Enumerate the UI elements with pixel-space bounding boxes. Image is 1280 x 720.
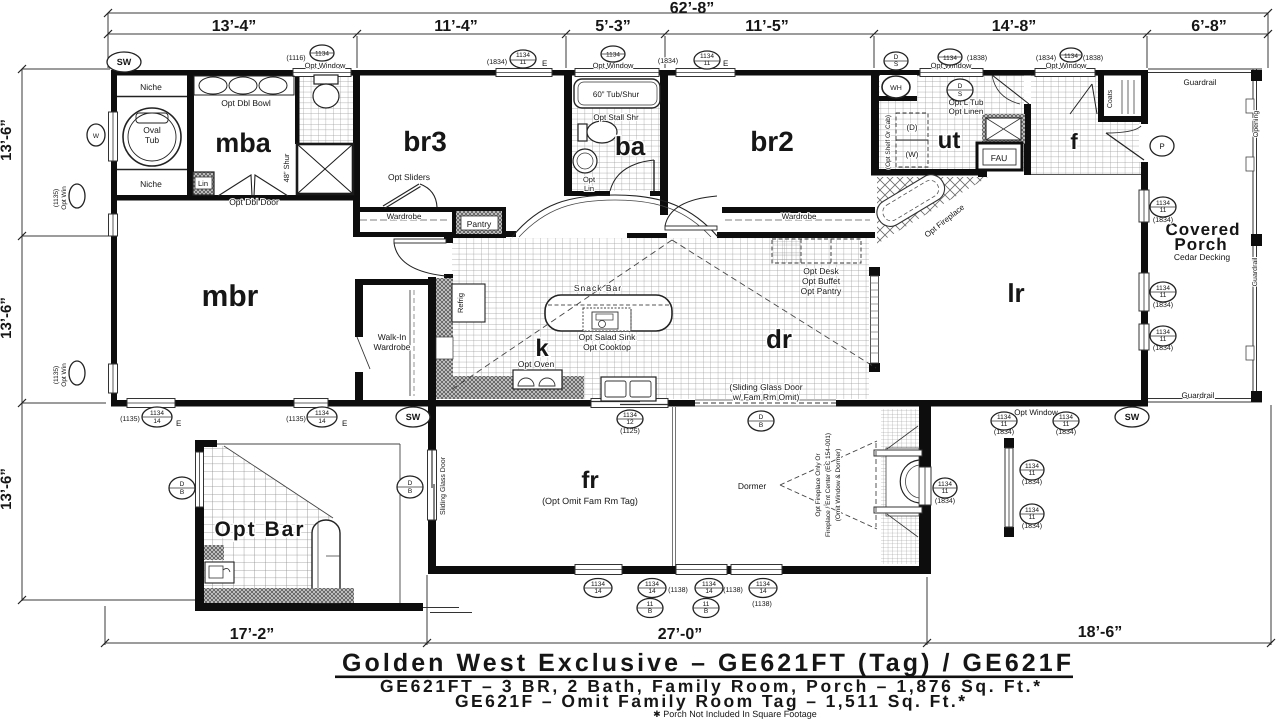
svg-text:(1834): (1834) (658, 57, 678, 65)
svg-text:1134: 1134 (1156, 200, 1170, 207)
svg-text:14: 14 (318, 418, 326, 425)
svg-text:6’-8”: 6’-8” (1191, 18, 1227, 35)
svg-text:Opt Sliders: Opt Sliders (388, 172, 430, 182)
svg-text:(1135): (1135) (120, 415, 140, 423)
svg-text:br2: br2 (750, 126, 794, 157)
svg-text:(1838): (1838) (967, 54, 987, 62)
svg-text:Walk-In: Walk-In (378, 332, 407, 342)
svg-text:1134: 1134 (756, 581, 770, 588)
svg-text:11: 11 (703, 601, 710, 608)
svg-text:B: B (648, 608, 652, 615)
svg-text:B: B (180, 489, 184, 496)
svg-text:1134: 1134 (150, 410, 164, 417)
svg-text:13’-4”: 13’-4” (212, 18, 256, 35)
svg-text:D: D (894, 54, 899, 61)
svg-text:Opening: Opening (1252, 111, 1260, 138)
svg-text:(1138): (1138) (752, 600, 772, 608)
svg-text:Lin: Lin (198, 179, 208, 188)
svg-text:(Omit Window & Dormer): (Omit Window & Dormer) (835, 449, 842, 522)
svg-text:13’-6”: 13’-6” (0, 468, 15, 510)
svg-text:11: 11 (1063, 421, 1070, 428)
svg-text:Opt: Opt (583, 175, 596, 184)
svg-text:1134: 1134 (1025, 463, 1039, 470)
svg-text:11: 11 (1001, 421, 1008, 428)
svg-text:11: 11 (942, 488, 949, 495)
svg-text:Guardrail: Guardrail (1182, 391, 1215, 400)
svg-text:br3: br3 (403, 126, 447, 157)
svg-text:1134: 1134 (623, 412, 637, 419)
svg-text:Opt Win: Opt Win (61, 186, 68, 210)
svg-text:Opt Salad Sink: Opt Salad Sink (579, 332, 636, 342)
svg-text:Fireplace / Ent Center (EC: Fireplace / Ent Center (EC 154-001) (825, 433, 832, 537)
svg-text:✱ Porch Not Included In S: ✱ Porch Not Included In Square Footage (653, 709, 817, 719)
svg-text:Opt Stall Shr: Opt Stall Shr (593, 113, 639, 122)
svg-text:f: f (1070, 129, 1078, 154)
svg-text:SW: SW (117, 57, 132, 67)
svg-text:1134: 1134 (1025, 507, 1039, 514)
svg-text:(1116): (1116) (286, 54, 305, 62)
svg-text:(1135): (1135) (286, 415, 306, 423)
svg-text:48” Shur: 48” Shur (282, 153, 291, 182)
svg-text:E: E (342, 419, 347, 428)
svg-text:1134: 1134 (315, 51, 329, 58)
svg-text:1134: 1134 (606, 52, 620, 59)
svg-text:Sliding Glass Door: Sliding Glass Door (439, 456, 447, 515)
svg-text:Opt Linen: Opt Linen (949, 107, 984, 116)
svg-text:14: 14 (705, 588, 713, 595)
svg-text:(1138): (1138) (668, 586, 688, 594)
svg-text:FAU: FAU (991, 153, 1008, 163)
svg-text:1134: 1134 (700, 53, 714, 60)
svg-text:11: 11 (1029, 470, 1036, 477)
svg-text:1134: 1134 (943, 55, 957, 62)
svg-text:(D): (D) (906, 123, 917, 132)
svg-text:11: 11 (647, 601, 654, 608)
svg-text:(W): (W) (906, 150, 919, 159)
svg-text:11: 11 (1160, 336, 1167, 343)
svg-text:Opt Win: Opt Win (61, 363, 68, 387)
svg-text:SW: SW (406, 412, 421, 422)
svg-text:1134: 1134 (938, 481, 952, 488)
svg-text:1134: 1134 (1156, 285, 1170, 292)
svg-text:Opt Bar: Opt Bar (214, 518, 305, 541)
svg-text:Opt Window: Opt Window (305, 61, 346, 70)
svg-text:Opt Oven: Opt Oven (518, 359, 555, 369)
svg-text:GE621F – Omit Family Room: GE621F – Omit Family Room Tag – 1,511 Sq… (455, 691, 965, 711)
svg-text:14: 14 (153, 418, 161, 425)
svg-text:E: E (176, 419, 181, 428)
svg-text:Coats: Coats (1107, 89, 1114, 108)
svg-text:1134: 1134 (315, 410, 329, 417)
svg-text:Opt Window: Opt Window (1046, 61, 1087, 70)
svg-text:Oval: Oval (143, 125, 161, 135)
svg-text:62’-8”: 62’-8” (670, 0, 714, 17)
svg-text:(1834): (1834) (487, 58, 507, 66)
svg-text:5’-3”: 5’-3” (595, 18, 631, 35)
svg-text:Opt Cooktop: Opt Cooktop (583, 342, 631, 352)
svg-text:D: D (180, 481, 185, 488)
svg-text:Opt Dbl Bowl: Opt Dbl Bowl (221, 98, 271, 108)
svg-text:Wardrobe: Wardrobe (387, 212, 422, 221)
svg-text:ut: ut (938, 127, 961, 154)
svg-text:11’-4”: 11’-4” (434, 18, 478, 35)
svg-text:lr: lr (1007, 278, 1024, 308)
svg-text:B: B (704, 608, 708, 615)
svg-text:Tub: Tub (145, 135, 160, 145)
svg-text:SW: SW (1125, 412, 1140, 422)
svg-text:w/ Fam Rm Omit): w/ Fam Rm Omit) (732, 392, 800, 402)
svg-text:1134: 1134 (1059, 414, 1073, 421)
svg-text:mbr: mbr (202, 280, 259, 313)
svg-text:Niche: Niche (140, 179, 162, 189)
svg-text:14: 14 (759, 588, 767, 595)
svg-text:18’-6”: 18’-6” (1078, 624, 1122, 641)
svg-text:11’-5”: 11’-5” (745, 18, 789, 35)
svg-text:11: 11 (1029, 514, 1036, 521)
svg-text:11: 11 (1160, 292, 1167, 299)
svg-text:(1135): (1135) (53, 366, 60, 384)
svg-text:1134: 1134 (702, 581, 716, 588)
svg-text:Cedar Decking: Cedar Decking (1174, 252, 1230, 262)
svg-text:60” Tub/Shur: 60” Tub/Shur (593, 90, 640, 99)
svg-text:S: S (894, 61, 899, 68)
svg-text:P: P (1159, 142, 1164, 151)
svg-text:17’-2”: 17’-2” (230, 626, 274, 643)
svg-text:Pantry: Pantry (467, 219, 492, 229)
svg-text:fr: fr (581, 467, 598, 494)
svg-text:Opt Pantry: Opt Pantry (801, 286, 842, 296)
svg-text:WH: WH (890, 85, 902, 92)
svg-text:dr: dr (766, 324, 792, 354)
svg-text:Guardrail: Guardrail (1251, 257, 1259, 286)
svg-text:Dormer: Dormer (738, 481, 767, 491)
svg-text:1134: 1134 (645, 581, 659, 588)
svg-text:14: 14 (648, 588, 656, 595)
svg-text:Wardrobe: Wardrobe (373, 342, 410, 352)
svg-text:Refrig: Refrig (456, 293, 465, 313)
svg-text:1134: 1134 (1156, 329, 1170, 336)
svg-text:(Opt Shelf Or Cab): (Opt Shelf Or Cab) (885, 115, 892, 169)
svg-text:Opt Desk: Opt Desk (803, 266, 839, 276)
svg-text:27’-0”: 27’-0” (658, 626, 702, 643)
svg-text:Snack Bar: Snack Bar (574, 283, 622, 293)
svg-text:13’-6”: 13’-6” (0, 119, 15, 161)
svg-text:W: W (93, 133, 100, 140)
svg-text:Guardrail: Guardrail (1184, 78, 1217, 87)
svg-text:(1834): (1834) (1036, 54, 1056, 62)
svg-text:Opt Dbl Door: Opt Dbl Door (229, 197, 279, 207)
svg-text:k: k (535, 335, 549, 362)
svg-text:Wardrobe: Wardrobe (782, 212, 817, 221)
svg-text:B: B (408, 488, 412, 495)
svg-text:Lin: Lin (584, 184, 594, 193)
svg-text:D: D (759, 414, 764, 421)
svg-text:(1838): (1838) (1083, 54, 1103, 62)
svg-text:1134: 1134 (997, 414, 1011, 421)
svg-text:14: 14 (594, 588, 602, 595)
svg-text:13’-6”: 13’-6” (0, 297, 15, 339)
svg-text:ba: ba (615, 131, 646, 161)
svg-text:(1138): (1138) (723, 586, 743, 594)
svg-text:1134: 1134 (516, 52, 530, 59)
svg-text:S: S (958, 91, 963, 98)
svg-text:D: D (408, 480, 413, 487)
svg-text:(Sliding Glass Door: (Sliding Glass Door (729, 382, 802, 392)
svg-text:Opt Window: Opt Window (1014, 408, 1058, 417)
svg-text:1134: 1134 (1064, 53, 1078, 60)
svg-text:E: E (723, 59, 728, 68)
svg-text:mba: mba (215, 128, 272, 158)
svg-text:(1135): (1135) (53, 189, 60, 207)
svg-text:B: B (759, 422, 763, 429)
svg-text:(Opt Omit Fam Rm Tag): (Opt Omit Fam Rm Tag) (542, 496, 638, 506)
svg-text:D: D (958, 83, 963, 90)
svg-text:1134: 1134 (591, 581, 605, 588)
svg-text:Opt Fireplace Only Or: Opt Fireplace Only Or (815, 453, 822, 517)
svg-text:12: 12 (626, 419, 634, 426)
svg-text:E: E (542, 59, 547, 68)
svg-text:11: 11 (1160, 207, 1167, 214)
svg-text:Niche: Niche (140, 82, 162, 92)
svg-text:Opt Buffet: Opt Buffet (802, 276, 841, 286)
svg-text:14’-8”: 14’-8” (992, 18, 1036, 35)
